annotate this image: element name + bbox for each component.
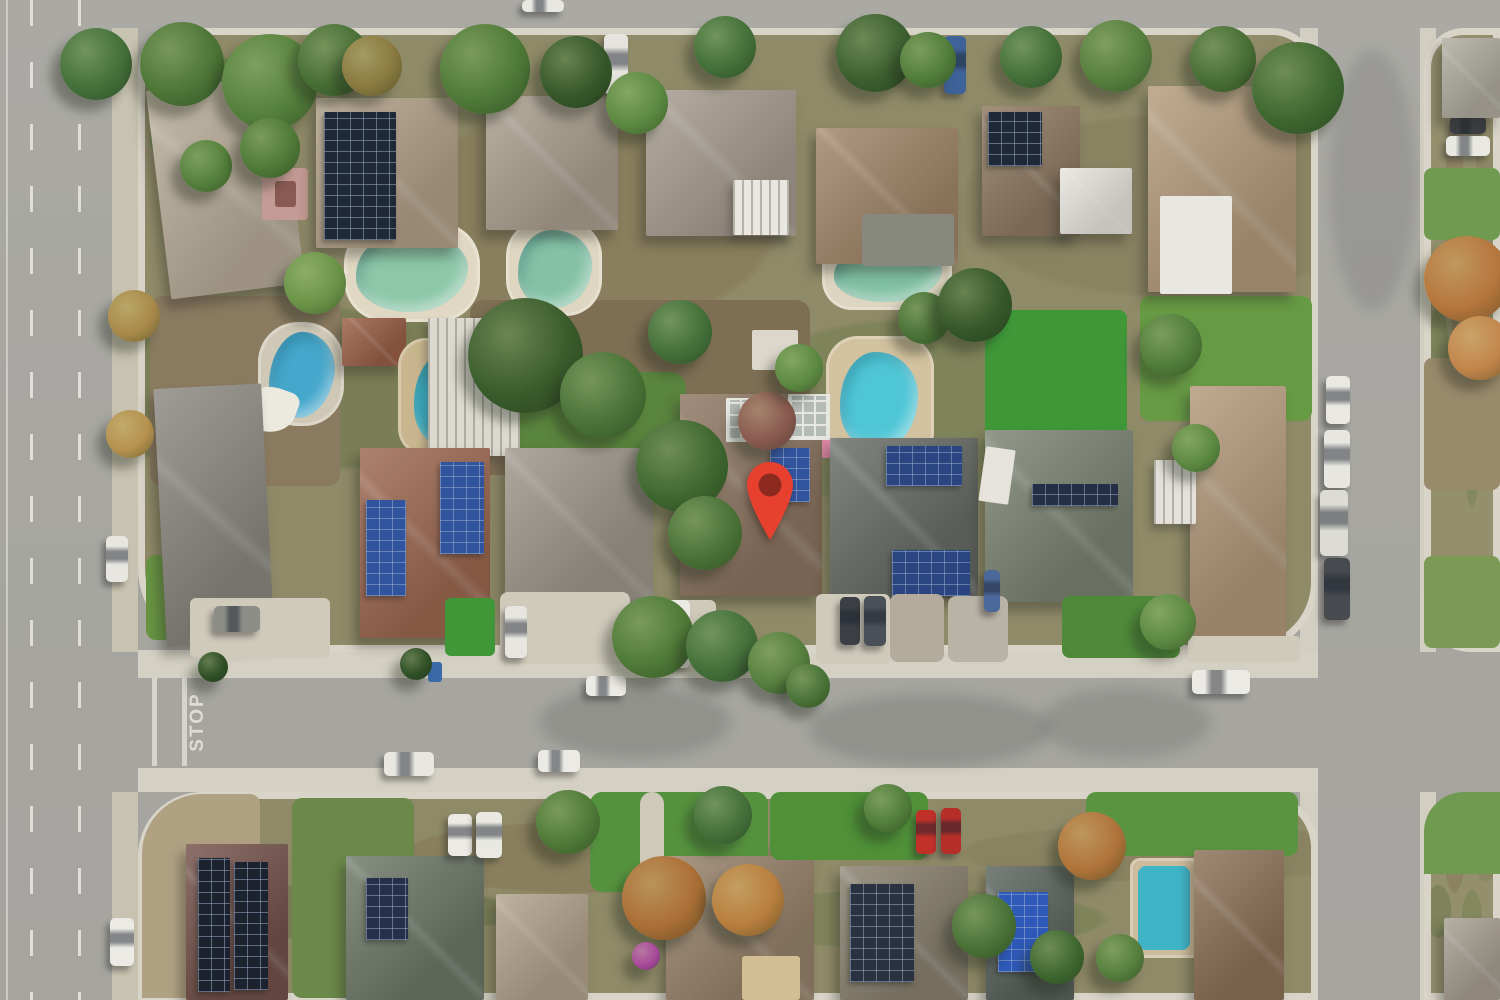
palm-tree — [284, 252, 346, 314]
house-roof — [1444, 918, 1500, 1000]
house-roof — [1442, 38, 1500, 118]
tree — [1252, 42, 1344, 134]
tree — [775, 344, 823, 392]
shed-roof — [342, 318, 406, 366]
parked-suv — [1450, 116, 1486, 134]
tree — [1096, 934, 1144, 982]
screened-patio — [862, 214, 954, 266]
patio-roof — [742, 956, 800, 1000]
tree-autumn — [1424, 236, 1500, 322]
lawn — [1424, 168, 1500, 240]
tree — [786, 664, 830, 708]
car-on-street — [538, 750, 580, 772]
solar-array — [886, 446, 962, 486]
house-roof — [1194, 850, 1284, 1000]
parked-boat — [505, 606, 527, 658]
tree — [1140, 594, 1196, 650]
parked-pickup — [214, 606, 260, 632]
stop-road-marking: STOP — [162, 700, 234, 744]
road-edge-line — [6, 0, 8, 1000]
lane-line — [78, 0, 81, 1000]
tree — [900, 32, 956, 88]
tree-red — [738, 392, 796, 450]
parked-suv — [864, 596, 886, 646]
parked-car-red — [916, 810, 936, 854]
street-shadow — [810, 694, 1050, 766]
tree — [864, 784, 912, 832]
tree — [694, 786, 752, 844]
roof-white-section — [1160, 196, 1232, 294]
car-on-alley — [522, 0, 564, 12]
tree-autumn — [1058, 812, 1126, 880]
solar-array — [324, 112, 396, 240]
driveway — [1188, 636, 1300, 662]
solar-array — [198, 858, 230, 992]
tree — [606, 72, 668, 134]
lane-line — [30, 0, 33, 1000]
driveway — [190, 598, 330, 658]
tree — [938, 268, 1012, 342]
gazebo-roof-center — [275, 181, 296, 207]
house-roof — [496, 894, 588, 1000]
patio-cover — [733, 180, 789, 235]
swimming-pool-rect — [1138, 866, 1190, 950]
lawn — [1424, 556, 1500, 648]
pickup-on-street — [384, 752, 434, 776]
tree — [1172, 424, 1220, 472]
tree-autumn — [712, 864, 784, 936]
tree — [180, 140, 232, 192]
house-roof — [486, 96, 618, 230]
tree — [1140, 314, 1202, 376]
tree — [648, 300, 712, 364]
tree — [694, 16, 756, 78]
tree — [560, 352, 646, 438]
tree — [342, 36, 402, 96]
tree — [952, 894, 1016, 958]
tree — [536, 790, 600, 854]
solar-array — [850, 884, 914, 982]
parked-suv-trailer — [1324, 558, 1350, 620]
solar-array — [366, 500, 406, 596]
van-on-street — [1192, 670, 1250, 694]
lawn — [1424, 792, 1500, 874]
parked-car-red — [941, 808, 961, 854]
house-roof — [1190, 386, 1286, 642]
tree — [1030, 930, 1084, 984]
tree — [1080, 20, 1152, 92]
tree — [1190, 26, 1256, 92]
parked-trailer-rv — [1320, 490, 1348, 556]
tree-autumn — [108, 290, 160, 342]
tree — [1000, 26, 1062, 88]
solar-array — [1032, 484, 1118, 506]
tree — [240, 118, 300, 178]
parked-suv — [840, 597, 860, 645]
street-tree — [400, 648, 432, 680]
bougainvillea-bush — [632, 942, 660, 970]
street-shadow — [1040, 688, 1210, 758]
parked-car — [106, 536, 128, 582]
solar-array — [366, 878, 408, 940]
house-roof — [505, 448, 653, 606]
tree-autumn — [106, 410, 154, 458]
parkway-strip-left-lower — [112, 792, 138, 1000]
car-on-street — [586, 676, 626, 696]
street-shadow — [540, 686, 730, 758]
lawn — [985, 310, 1127, 438]
gravel-yard — [890, 594, 944, 662]
tree — [612, 596, 694, 678]
tree — [540, 36, 612, 108]
solar-array — [234, 862, 268, 990]
tree-autumn — [622, 856, 706, 940]
tree — [668, 496, 742, 570]
tree — [440, 24, 530, 114]
stop-bar-line — [152, 678, 157, 766]
tree — [140, 22, 224, 106]
solar-array — [988, 112, 1042, 166]
parked-car — [1326, 376, 1350, 424]
car-on-main-road — [110, 918, 134, 966]
parked-car — [984, 570, 1000, 612]
tree — [686, 610, 758, 682]
street-tree — [198, 652, 228, 682]
solar-array — [440, 462, 484, 554]
aerial-neighborhood-photo: STOP — [0, 0, 1500, 1000]
parked-van — [476, 812, 502, 858]
solar-array — [892, 550, 970, 596]
turf-lawn — [445, 598, 495, 656]
parked-van — [448, 814, 472, 856]
location-pin-icon — [747, 462, 793, 540]
tree — [60, 28, 132, 100]
parked-car — [1446, 136, 1490, 156]
parked-van — [1324, 430, 1350, 488]
garage-roof — [1060, 168, 1132, 234]
